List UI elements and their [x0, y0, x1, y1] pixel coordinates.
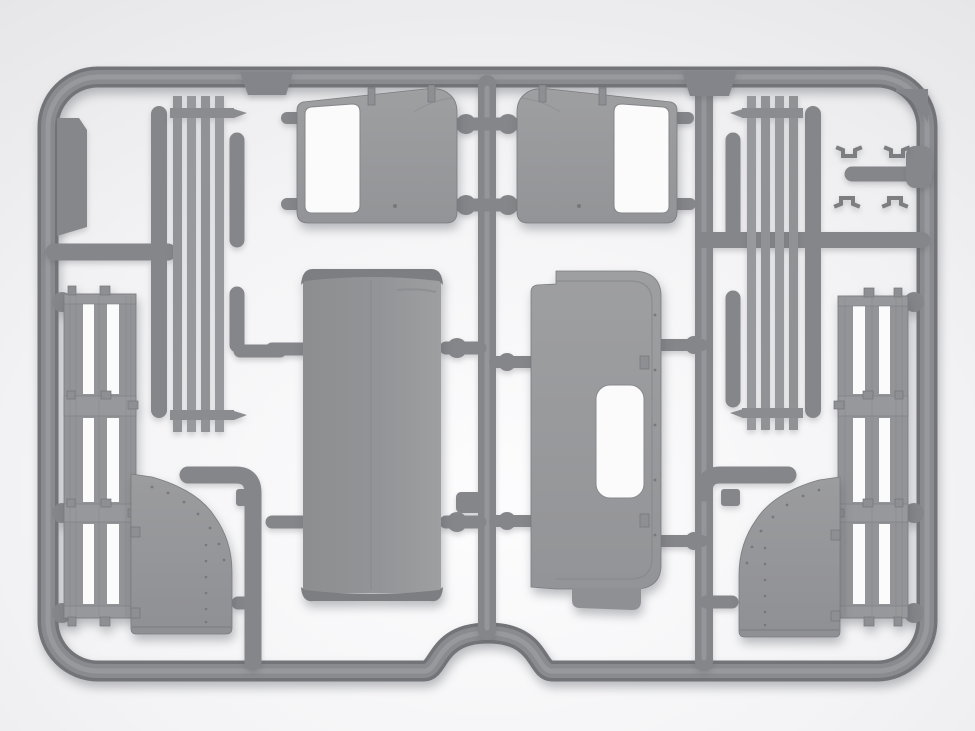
edge-part-left: [57, 118, 87, 236]
board-tab: [894, 617, 902, 626]
rear-panel-bottom-step: [572, 588, 641, 610]
side-board-right: [834, 288, 908, 626]
hinge-tab: [428, 85, 435, 102]
cab-door-left: [297, 85, 457, 223]
board-tab: [100, 286, 110, 295]
crossbar: [742, 108, 803, 118]
board-tab: [67, 499, 75, 507]
panel-bracket: [831, 611, 840, 621]
pad-left: [236, 489, 255, 506]
pad-right: [721, 489, 740, 506]
crossbar: [742, 408, 803, 418]
flat-strip-right: [682, 71, 737, 96]
hinge-tab: [368, 88, 375, 105]
side-board-left: [64, 286, 138, 626]
rear-tab: [640, 514, 649, 527]
board-bracket: [128, 401, 138, 409]
panel-bracket: [131, 527, 140, 537]
sprue-photo: [0, 0, 975, 731]
board-tab: [864, 288, 874, 297]
rear-tab: [640, 356, 649, 369]
board-tab: [101, 499, 111, 507]
board-bracket: [834, 401, 844, 409]
door-window-left: [305, 104, 360, 213]
panel-bracket: [831, 530, 840, 540]
board-tab: [101, 391, 111, 399]
rear-window: [596, 385, 644, 498]
crossbar: [170, 410, 234, 420]
board-tab: [67, 391, 75, 399]
crossbar: [170, 108, 234, 118]
board-tab: [100, 617, 110, 626]
board-tab: [895, 499, 903, 507]
board-tab: [68, 617, 76, 626]
flat-strip-left: [240, 72, 293, 95]
board-tab: [864, 617, 874, 626]
roof-panel: [301, 269, 443, 601]
hinge-tab: [599, 88, 606, 105]
board-tab: [863, 499, 873, 507]
door-window-right: [614, 104, 669, 213]
panel-bracket: [131, 608, 140, 618]
photo-stage: [0, 0, 975, 731]
board-tab: [895, 391, 903, 399]
board-tab: [68, 286, 76, 295]
cab-door-right: [517, 85, 677, 223]
board-tab: [894, 288, 902, 297]
board-tab: [863, 391, 873, 399]
hinge-tab: [539, 85, 546, 102]
rear-panel: [531, 271, 661, 610]
corner-block-right: [906, 146, 932, 188]
